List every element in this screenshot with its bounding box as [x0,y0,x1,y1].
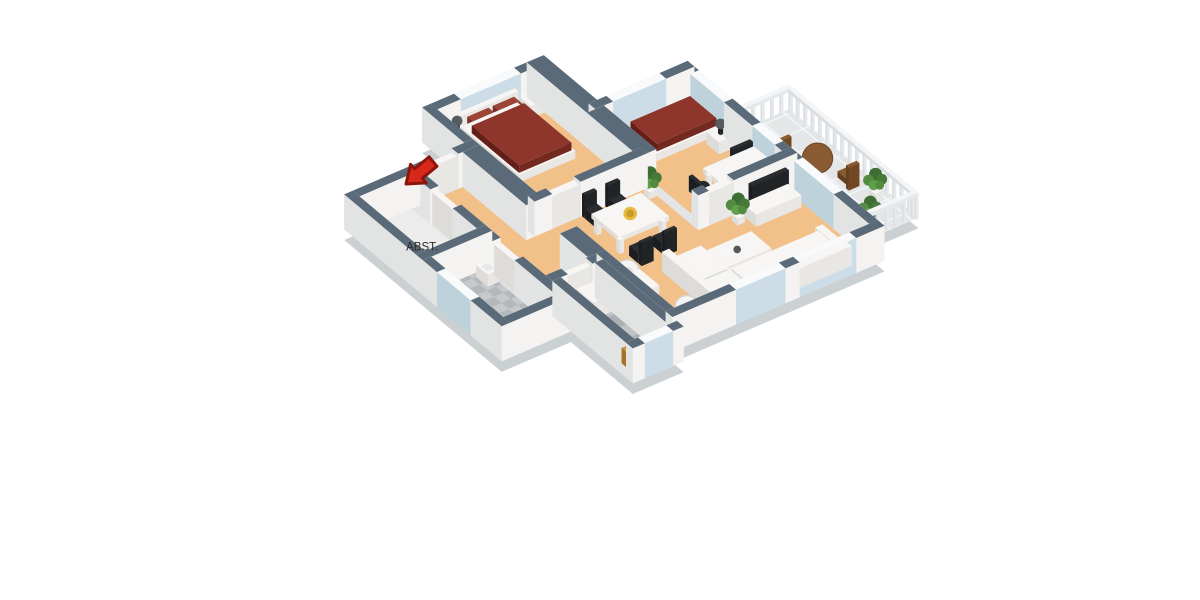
balcony-railing [916,196,918,220]
wall [502,323,510,362]
plant [650,179,659,188]
balcony-railing [772,96,774,120]
balcony-railing [895,203,897,227]
wall [786,262,800,303]
dining-chair-back [605,183,608,208]
dining-table-leg [620,239,624,255]
dining-chair-back [582,193,585,218]
wall [698,191,709,231]
wall [416,255,423,296]
fruit-bowl-inner [626,210,634,218]
balcony-chair-back [846,165,849,190]
balcony-railing [912,196,914,220]
plant [738,206,747,215]
wall [633,343,645,383]
wall [673,327,684,367]
balcony-railing [904,199,906,223]
wall [528,196,535,237]
dining-table-leg [616,238,619,255]
balcony-railing [781,92,783,116]
wall [692,190,699,231]
dining-chair-back [639,241,642,266]
balcony-chair-back [849,163,860,190]
balcony-railing [762,100,764,124]
table-decor [733,246,741,254]
plant [875,181,884,190]
balcony-railing [914,196,916,220]
floorplan-svg: ABST. [0,0,1200,600]
page: ABST. [0,0,1200,600]
storage-room-label: ABST. [406,242,438,254]
wall [626,343,633,384]
balcony-railing [886,207,888,231]
